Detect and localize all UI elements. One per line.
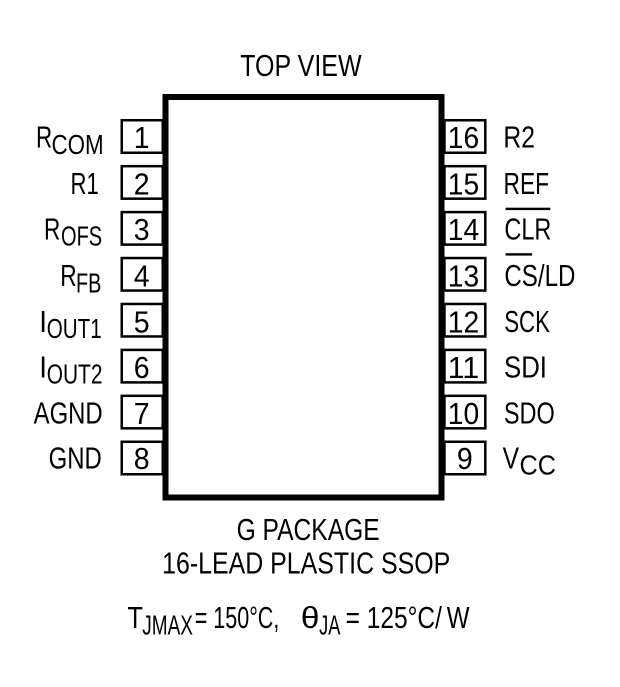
svg-text:R: R [36,120,52,155]
svg-text:3: 3 [134,212,150,247]
svg-text:OUT1: OUT1 [47,313,102,344]
svg-text:JMAX: JMAX [142,609,193,640]
svg-text:CLR: CLR [504,211,551,246]
svg-text:W: W [447,600,470,635]
svg-text:4: 4 [134,259,150,294]
svg-text:15: 15 [448,167,479,202]
svg-text:16: 16 [448,120,479,155]
svg-text:10: 10 [448,396,479,431]
svg-text:1: 1 [134,120,150,155]
svg-text:θ: θ [301,600,320,635]
svg-text:= 150°C,: = 150°C, [195,600,280,635]
svg-text:SCK: SCK [504,304,550,339]
svg-text:REF: REF [504,166,550,201]
svg-text:JA: JA [319,609,340,640]
svg-text:R: R [60,258,76,293]
svg-text:SDI: SDI [504,349,547,384]
svg-text:FB: FB [76,267,101,298]
svg-text:6: 6 [134,350,150,385]
svg-text:R2: R2 [503,120,535,155]
svg-text:14: 14 [448,212,479,247]
svg-text:R: R [44,211,60,246]
svg-text:T: T [127,600,143,635]
svg-text:7: 7 [134,396,150,431]
svg-text:CS/LD: CS/LD [504,258,575,293]
svg-text:16-LEAD PLASTIC SSOP: 16-LEAD PLASTIC SSOP [162,545,450,580]
svg-text:V: V [503,440,520,475]
svg-text:OFS: OFS [61,221,102,252]
svg-text:11: 11 [448,350,479,385]
svg-text:R1: R1 [70,166,98,201]
svg-text:13: 13 [448,259,479,294]
svg-text:AGND: AGND [34,396,103,431]
svg-text:12: 12 [448,304,479,339]
svg-text:5: 5 [134,304,150,339]
svg-text:8: 8 [134,441,150,476]
svg-text:SDO: SDO [504,396,555,431]
svg-text:= 125°C/: = 125°C/ [346,600,443,635]
svg-text:OUT2: OUT2 [47,359,103,390]
svg-text:G PACKAGE: G PACKAGE [237,512,380,547]
svg-text:TOP VIEW: TOP VIEW [240,48,362,83]
svg-text:CC: CC [520,450,556,481]
svg-text:GND: GND [49,440,102,475]
svg-text:COM: COM [51,129,103,160]
svg-text:9: 9 [457,441,473,476]
svg-text:2: 2 [134,167,150,202]
